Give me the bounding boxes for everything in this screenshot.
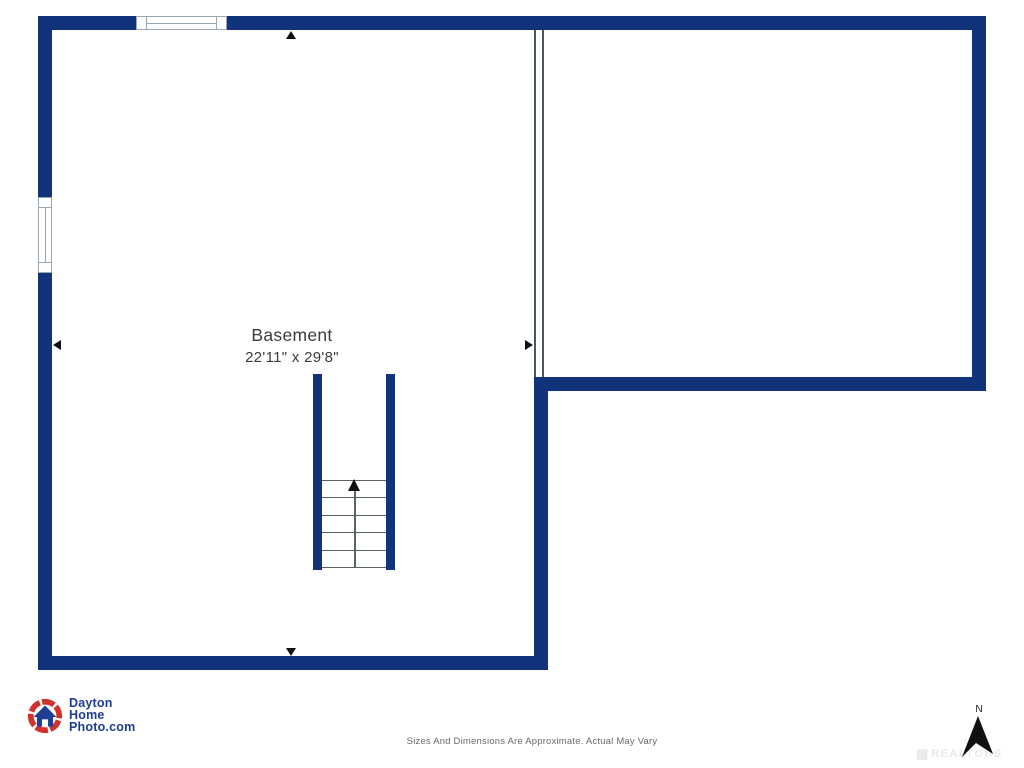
- stair-wall-right: [386, 374, 395, 570]
- room-dimensions: 22'11" x 29'8": [192, 349, 392, 366]
- compass: N: [956, 704, 1002, 764]
- dimension-arrow-right-icon: [525, 340, 533, 350]
- window-left-wall: [38, 197, 52, 273]
- room-label: Basement: [192, 325, 392, 346]
- realtors-grid-icon: ▦: [916, 746, 928, 762]
- window-glass-line: [146, 23, 217, 24]
- wall-bottom-basement: [38, 656, 548, 670]
- stair-direction-line: [354, 490, 356, 568]
- interior-divider-wall: [534, 30, 544, 377]
- wall-mid-vertical: [534, 377, 548, 670]
- stairs-direction-arrow-icon: [348, 479, 360, 491]
- camera-shutter-house-icon: [26, 697, 64, 735]
- stair-wall-left: [313, 374, 322, 570]
- wall-right: [972, 16, 986, 391]
- compass-north-label: N: [956, 704, 1002, 715]
- window-top-wall: [136, 16, 227, 30]
- logo-line-3: Photo.com: [69, 721, 135, 733]
- dimension-arrow-down-icon: [286, 648, 296, 656]
- wall-left: [38, 16, 52, 670]
- dimension-arrow-up-icon: [286, 31, 296, 39]
- wall-right-room-bottom: [534, 377, 986, 391]
- north-arrow-icon: [959, 715, 999, 759]
- window-glass-line: [45, 207, 46, 263]
- dimension-arrow-left-icon: [53, 340, 61, 350]
- floorplan-canvas: Basement 22'11" x 29'8" Dayton Home Phot…: [0, 0, 1024, 768]
- logo-text: Dayton Home Photo.com: [69, 697, 135, 733]
- dayton-home-photo-logo: Dayton Home Photo.com: [26, 697, 135, 735]
- disclaimer-text: Sizes And Dimensions Are Approximate. Ac…: [312, 736, 752, 747]
